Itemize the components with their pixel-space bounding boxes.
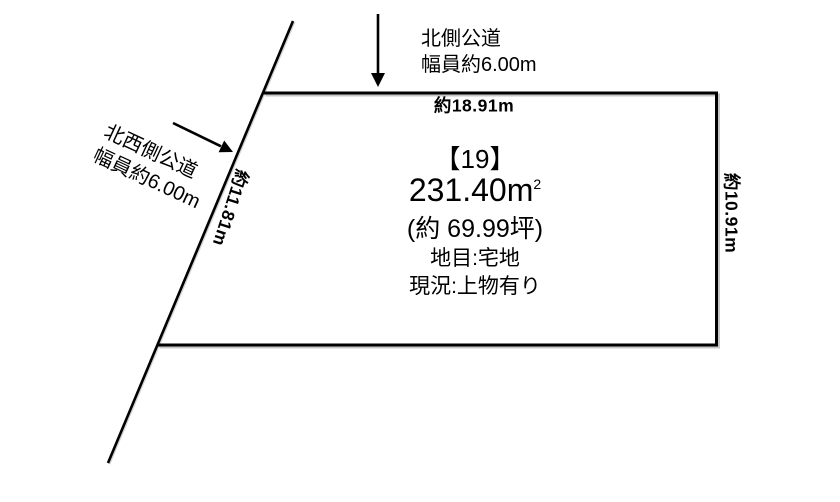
parcel-info-block: 【19】 231.40m2 (約 69.99坪) 地目:宅地 現況:上物有り (407, 145, 543, 301)
right-edge-dimension: 約10.91m (720, 173, 745, 253)
parcel-number: 【19】 (407, 145, 543, 173)
land-plot-diagram: 北側公道 幅員約6.00m 北西側公道 幅員約6.00m 約18.91m 約10… (0, 0, 840, 502)
parcel-current-status: 現況:上物有り (407, 273, 543, 301)
top-edge-dimension: 約18.91m (434, 93, 514, 118)
parcel-area-value: 231.40m (409, 172, 534, 208)
parcel-land-category: 地目:宅地 (407, 245, 543, 273)
diagonal-boundary-line (108, 21, 293, 463)
parcel-area: 231.40m2 (407, 173, 543, 213)
north-road-label: 北側公道 幅員約6.00m (421, 26, 537, 78)
north-road-arrow-icon (371, 14, 385, 87)
north-road-name: 北側公道 (421, 26, 537, 52)
parcel-area-sup: 2 (533, 176, 541, 192)
parcel-area-tsubo: (約 69.99坪) (407, 213, 543, 245)
north-road-width: 幅員約6.00m (421, 52, 537, 78)
northwest-road-arrow-icon (173, 123, 233, 152)
